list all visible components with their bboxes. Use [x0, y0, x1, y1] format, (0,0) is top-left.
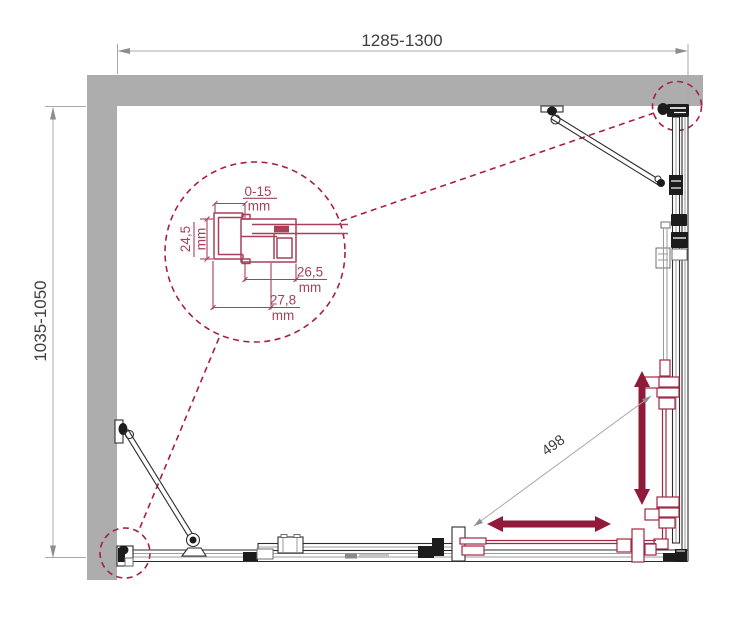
detail-dim-adjustment-unit: mm	[248, 199, 271, 214]
bottom-door-guide-block	[418, 546, 434, 558]
left-support-brace	[115, 420, 206, 556]
left-wall	[87, 75, 117, 580]
detail-dim-adjustment-value: 0-15	[244, 184, 271, 199]
slide-arrow-vertical	[634, 371, 650, 505]
brace-glass-clamp-top	[669, 175, 683, 195]
dim-arrow-right	[676, 48, 689, 54]
dim-arrow-left	[118, 48, 131, 54]
slide-arrow-horizontal	[487, 516, 611, 532]
right-panel-wall-bracket	[658, 103, 690, 117]
bottom-panel-clamp	[278, 535, 303, 554]
detail-dim-profile-width-value: 27,8	[270, 293, 296, 308]
bottom-panel-wall-profile	[117, 546, 133, 567]
right-panel-clamps	[656, 214, 688, 268]
corner-bracket	[663, 549, 687, 562]
top-support-brace	[541, 106, 683, 195]
detail-dim-profile-depth-value: 24,5	[178, 226, 193, 252]
door-slide-arrows	[487, 371, 650, 532]
bottom-door-roller-right	[617, 539, 631, 552]
bottom-side-panel-assembly	[117, 527, 688, 566]
dim-arrow-top	[50, 107, 56, 120]
right-door-upper-roller	[660, 360, 670, 376]
inner-adjustable-profile	[241, 219, 296, 262]
dim-arrow-bottom	[50, 546, 56, 559]
brace-floor-foot	[182, 548, 206, 556]
profile-cavity	[277, 238, 292, 258]
walls	[87, 75, 703, 580]
detail-dim-channel-width-value: 26,5	[297, 265, 323, 280]
detail-leader-top-right	[341, 113, 654, 221]
bottom-door-roller-left	[460, 538, 486, 544]
depth-dimension: 1035-1050	[31, 107, 86, 559]
entry-width-dimension: 498	[474, 396, 651, 526]
glass-clamp-section	[274, 226, 289, 233]
technical-drawing-page: 1285-1300 1035-1050	[0, 0, 750, 639]
entry-width-dimension-label: 498	[539, 432, 568, 459]
depth-dimension-label: 1035-1050	[31, 280, 50, 361]
top-wall	[87, 75, 703, 106]
detail-dim-channel-width: 26,5 mm	[243, 264, 328, 296]
detail-leader-bottom-left	[139, 338, 219, 530]
detail-dim-profile-depth-unit: mm	[194, 228, 209, 251]
right-side-panel-assembly	[645, 103, 689, 562]
detail-dim-profile-width: 27,8 mm	[211, 261, 301, 323]
bottom-door-end-post	[632, 529, 644, 562]
width-dimension-label: 1285-1300	[361, 31, 442, 50]
bottom-panel-end-guide	[243, 552, 258, 561]
detail-dim-profile-width-unit: mm	[272, 308, 295, 323]
wall-profile-cross-section: 0-15 mm 24,5 mm 26,5 mm	[178, 184, 348, 323]
right-door-roller-arm-lower	[645, 509, 659, 520]
rail-stopper	[345, 554, 357, 559]
detail-dim-channel-width-unit: mm	[299, 280, 322, 295]
detail-dim-profile-depth: 24,5 mm	[178, 217, 213, 262]
technical-drawing-canvas: 1285-1300 1035-1050	[0, 0, 750, 639]
right-door-lower-roller	[657, 497, 679, 507]
